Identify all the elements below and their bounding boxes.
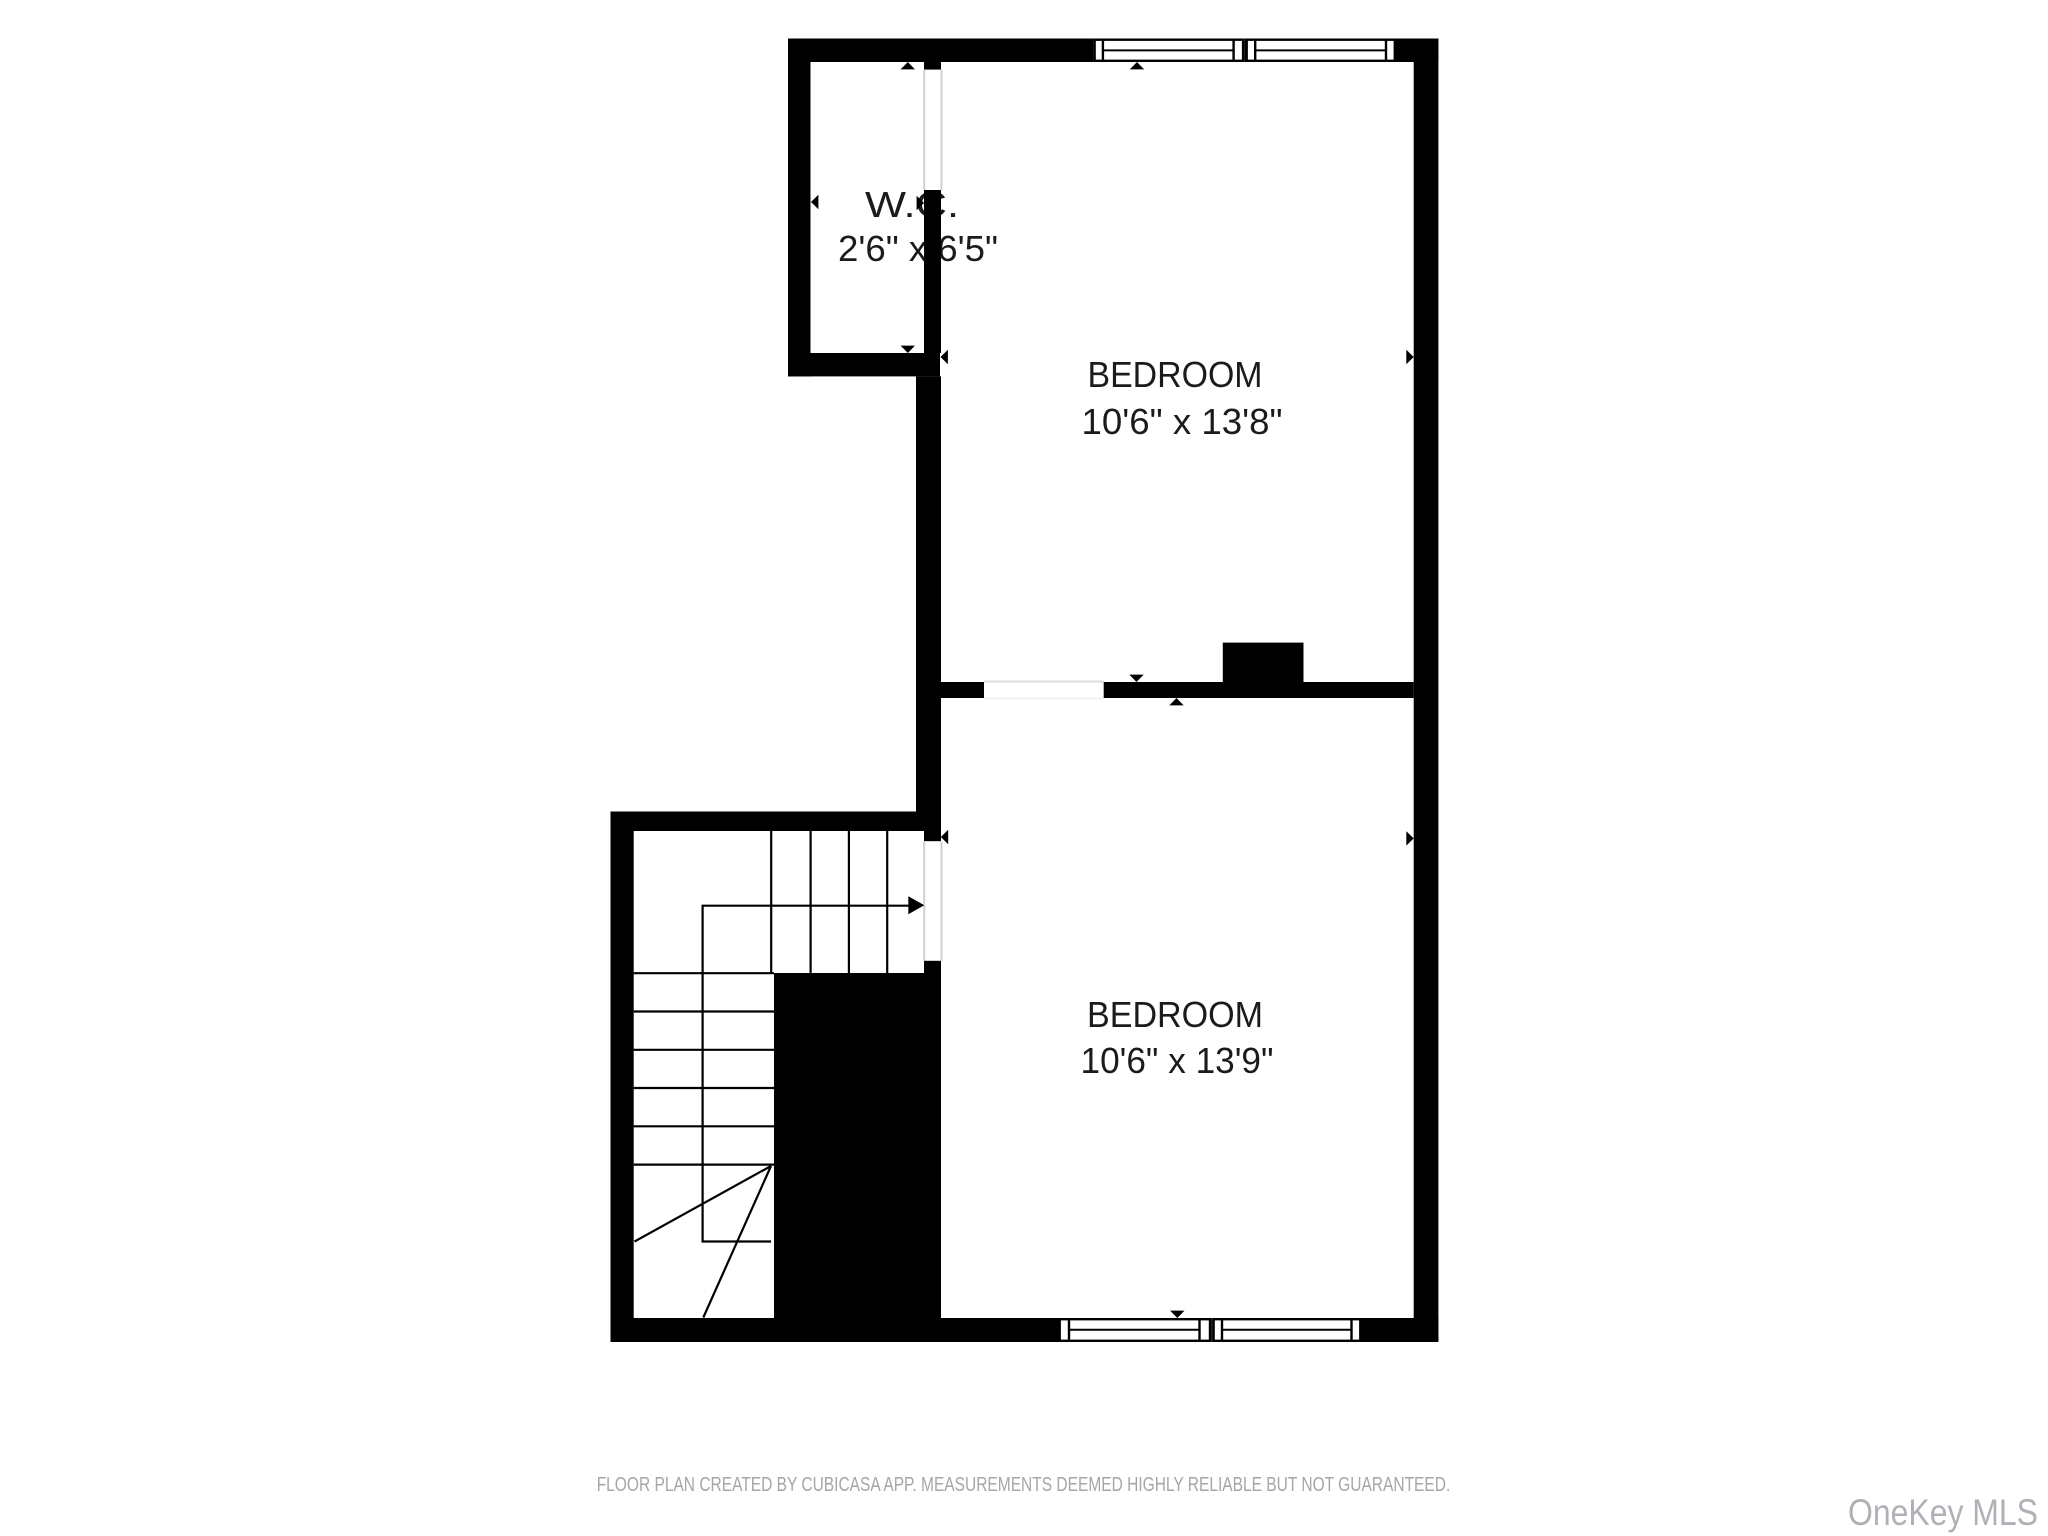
svg-text:W.C.: W.C. — [865, 184, 959, 225]
svg-text:BEDROOM: BEDROOM — [1088, 354, 1263, 395]
svg-text:FLOOR PLAN CREATED BY CUBICASA: FLOOR PLAN CREATED BY CUBICASA APP. MEAS… — [597, 1473, 1451, 1496]
svg-text:OneKey MLS: OneKey MLS — [1848, 1491, 2038, 1533]
svg-text:10'6" x 13'8": 10'6" x 13'8" — [1082, 401, 1283, 442]
svg-text:2'6" x 6'5": 2'6" x 6'5" — [838, 228, 998, 269]
svg-text:BEDROOM: BEDROOM — [1087, 994, 1263, 1035]
svg-text:10'6" x 13'9": 10'6" x 13'9" — [1081, 1040, 1274, 1081]
